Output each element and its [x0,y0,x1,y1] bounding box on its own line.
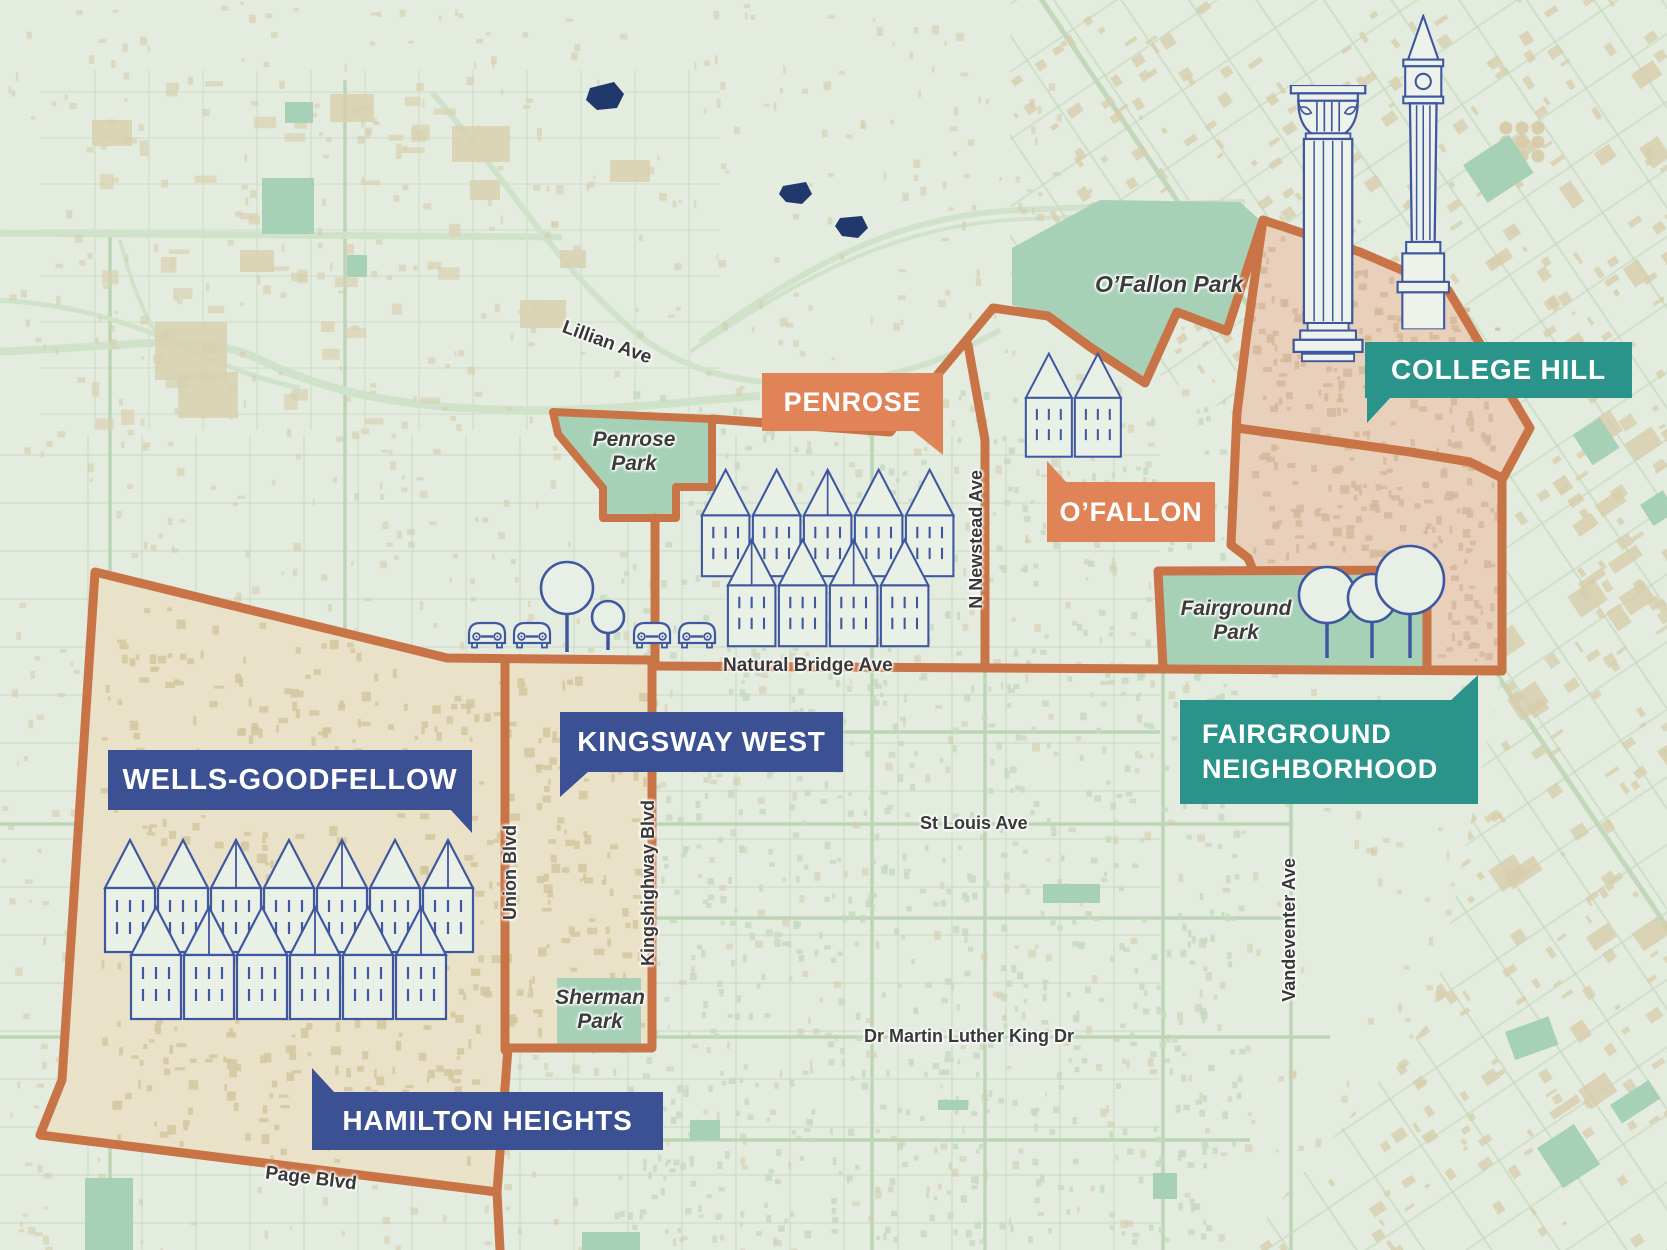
park-label-penrose-line1: Penrose [593,428,676,451]
street-label-kingshighway-blvd: Kingshighway Blvd [638,800,659,966]
map-canvas [0,0,1667,1250]
label-penrose: PENROSE [762,373,943,431]
park-label-penrose: Penrose Park [570,428,698,476]
street-label-n-newstead-ave: N Newstead Ave [966,470,987,609]
park-label-penrose-line2: Park [611,452,657,475]
park-label-fairground-line2: Park [1213,621,1259,644]
car-icon [679,623,715,648]
label-hamilton-heights: HAMILTON HEIGHTS [312,1092,663,1150]
neighborhood-map: PENROSE O’FALLON COLLEGE HILL FAIRGROUND… [0,0,1667,1250]
car-icon [469,623,505,648]
label-college-hill: COLLEGE HILL [1365,342,1632,398]
street-label-union-blvd: Union Blvd [500,825,521,920]
label-fairground: FAIRGROUND NEIGHBORHOOD [1180,700,1478,804]
park-label-fairground: Fairground Park [1170,597,1302,645]
label-kingsway-west: KINGSWAY WEST [560,712,843,772]
street-label-natural-bridge-ave: Natural Bridge Ave [723,655,893,677]
car-icon [514,623,550,648]
street-label-mlk-dr: Dr Martin Luther King Dr [864,1026,1074,1047]
label-wells-goodfellow-text: WELLS-GOODFELLOW [123,764,458,797]
park-label-ofallon: O’Fallon Park [1095,272,1243,296]
park-label-sherman-line2: Park [577,1010,623,1033]
label-kingsway-west-text: KINGSWAY WEST [577,726,825,758]
park-label-sherman: Sherman Park [545,986,655,1034]
car-icon [634,623,670,648]
label-ofallon-text: O’FALLON [1060,497,1203,528]
label-wells-goodfellow: WELLS-GOODFELLOW [108,750,472,810]
label-college-hill-text: COLLEGE HILL [1391,354,1606,386]
label-hamilton-heights-text: HAMILTON HEIGHTS [342,1105,632,1137]
street-label-st-louis-ave: St Louis Ave [920,813,1028,834]
label-penrose-text: PENROSE [784,387,922,418]
park-label-sherman-line1: Sherman [555,986,645,1009]
label-fairground-line1: FAIRGROUND [1202,719,1392,749]
park-label-fairground-line1: Fairground [1181,597,1292,620]
street-label-vandeventer-ave: Vandeventer Ave [1279,858,1300,1002]
label-ofallon: O’FALLON [1047,482,1215,542]
label-fairground-line2: NEIGHBORHOOD [1202,754,1438,784]
